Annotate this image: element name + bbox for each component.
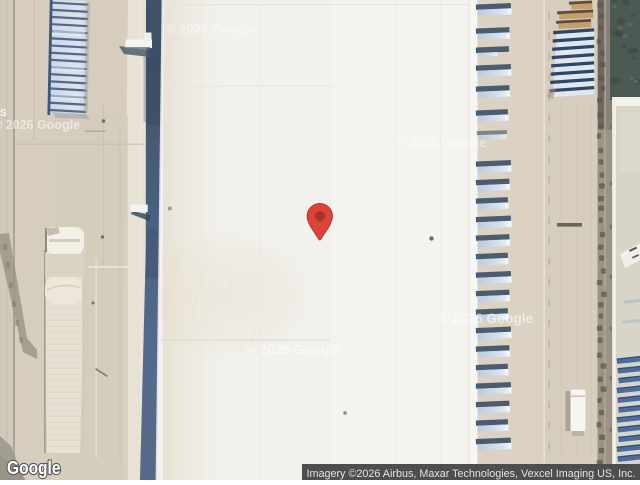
svg-text:© 2026 Google: © 2026 Google <box>0 118 80 132</box>
svg-text:© 2026 Google: © 2026 Google <box>396 135 487 150</box>
svg-text:Imagery ©2026 Airbus, Maxar Te: Imagery ©2026 Airbus, Maxar Technologies… <box>307 468 636 480</box>
svg-text:Google: Google <box>7 458 61 478</box>
svg-text:S: S <box>0 108 7 119</box>
svg-text:© 2026 Google: © 2026 Google <box>439 311 533 326</box>
svg-text:© 2026 Google: © 2026 Google <box>166 21 257 36</box>
svg-text:© 2026 Google: © 2026 Google <box>246 342 340 357</box>
